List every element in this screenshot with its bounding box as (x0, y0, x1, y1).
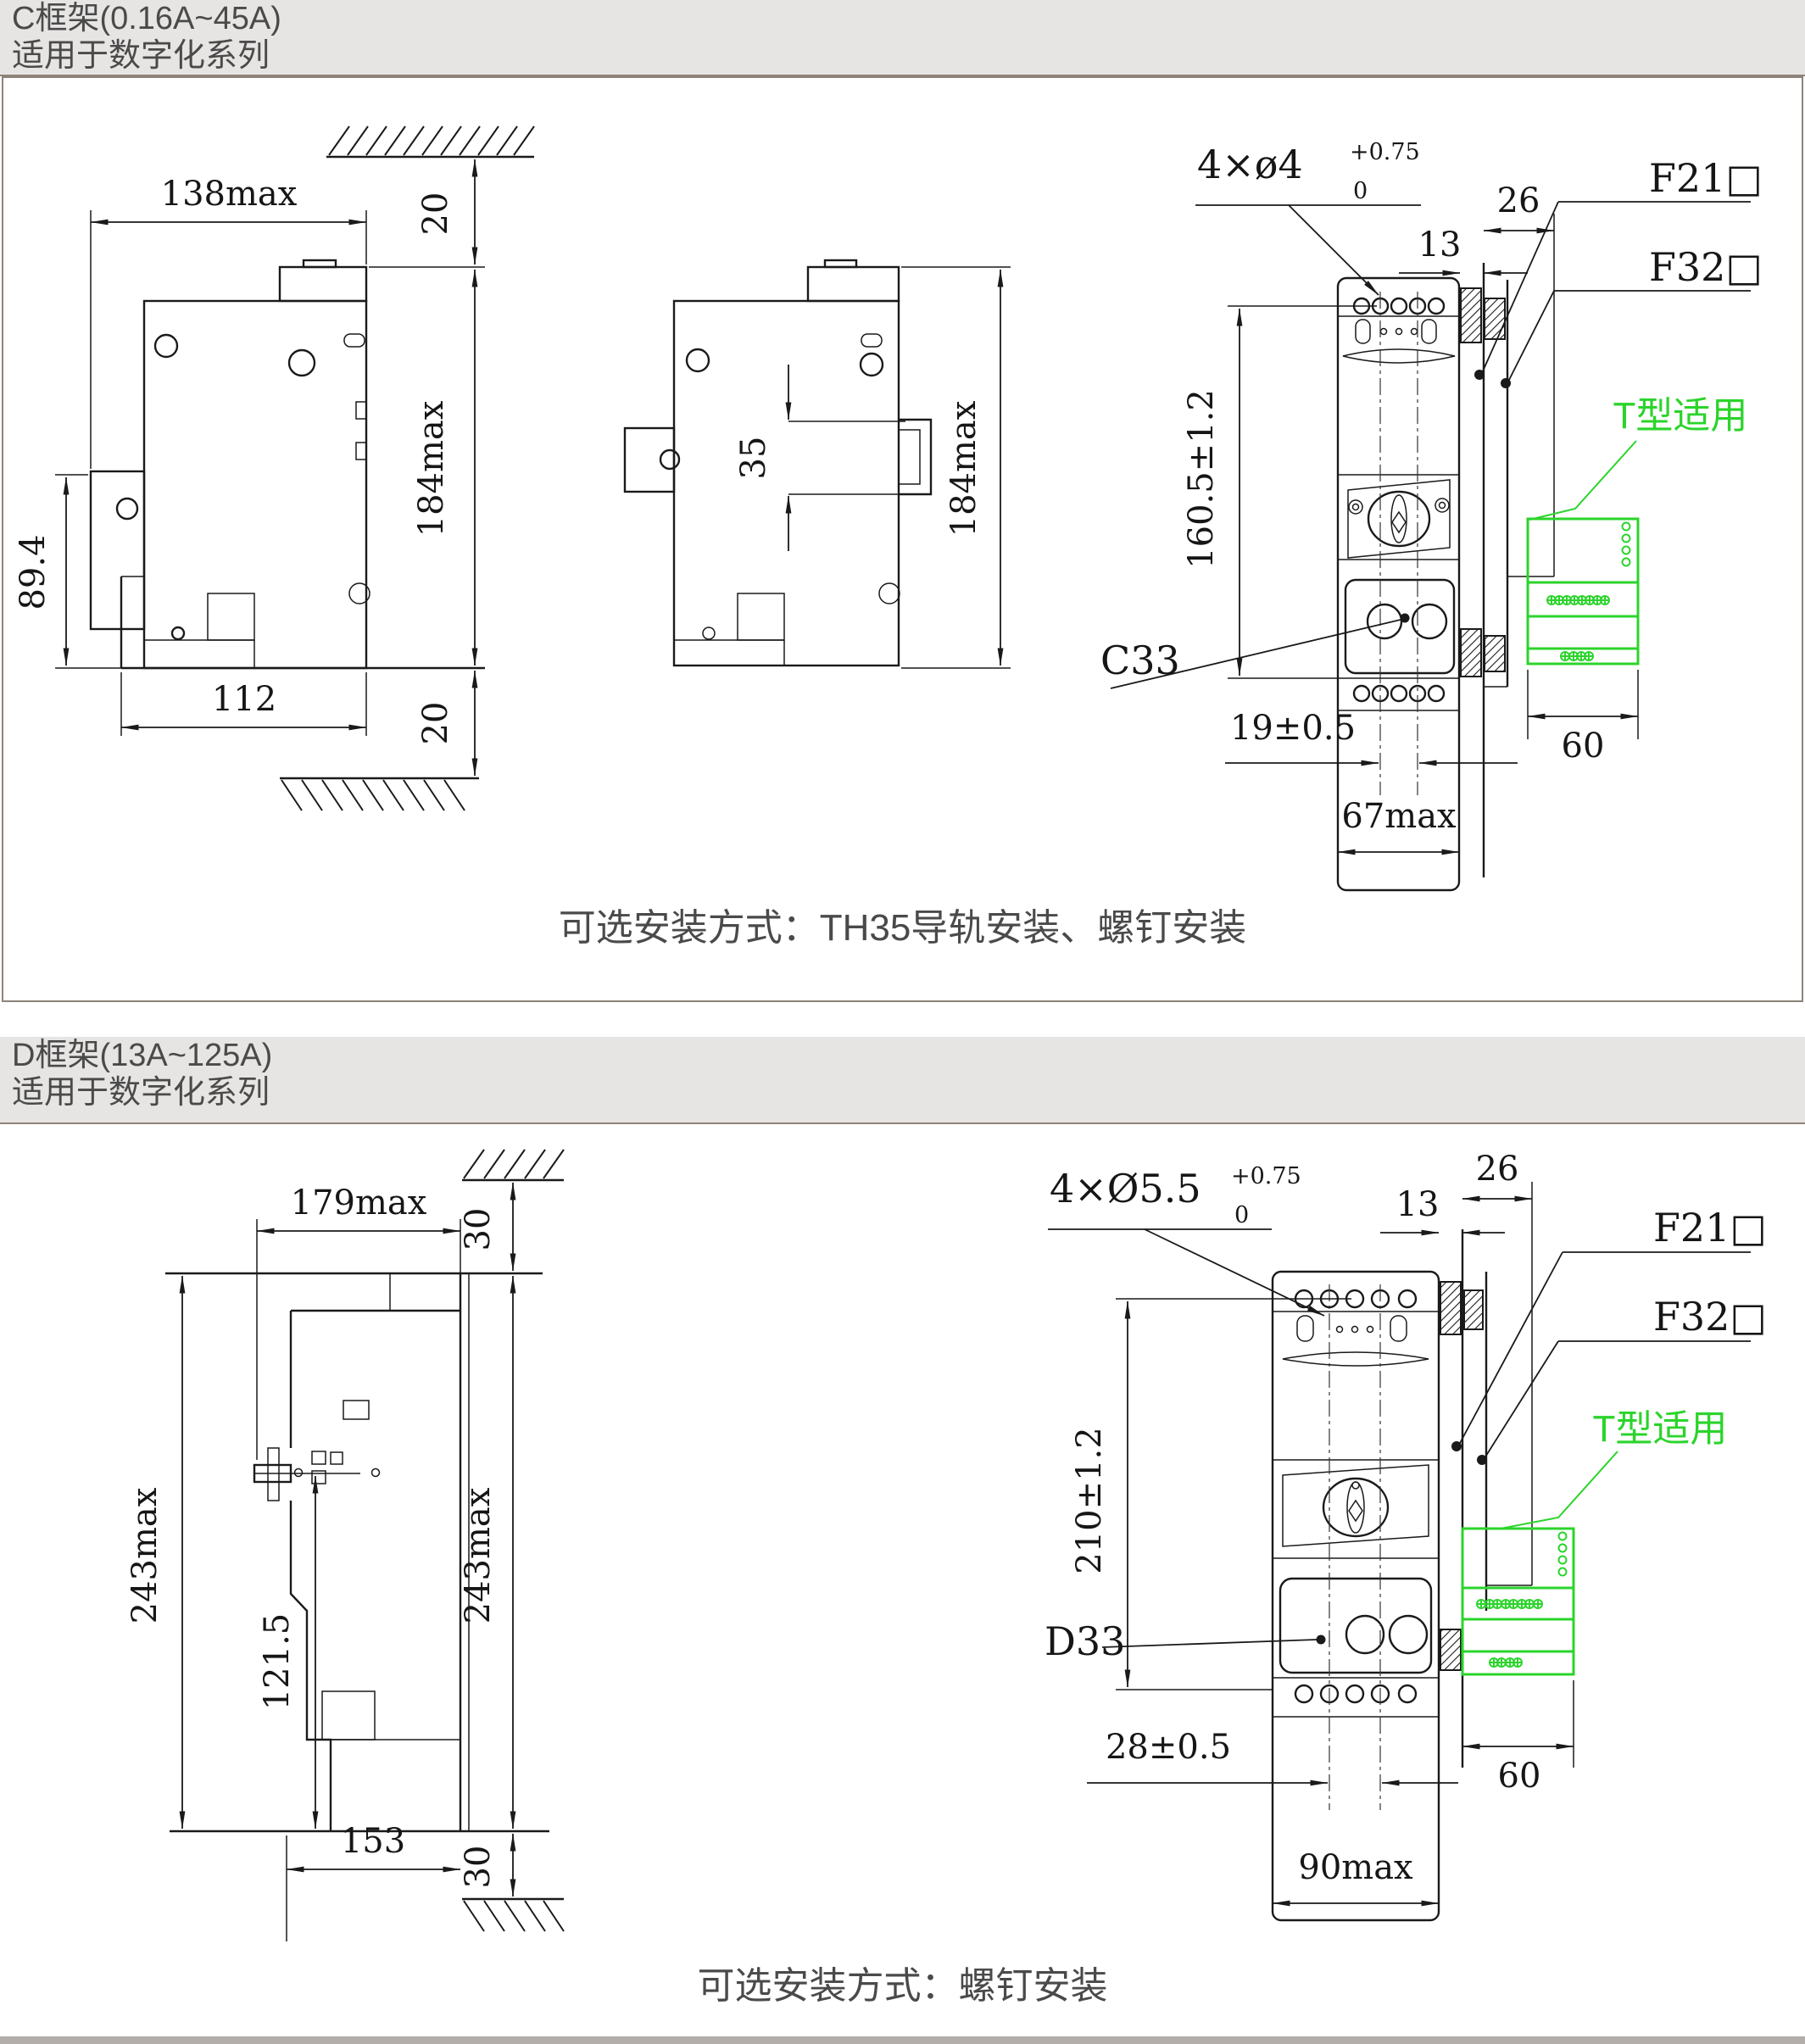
t-type-note-label: T型适用 (1613, 395, 1748, 437)
dim-label-13-d: 13 (1396, 1185, 1440, 1224)
dim-label-26: 26 (1497, 181, 1540, 220)
wall-hatch-bottom-icon (280, 778, 479, 810)
dim-c-bottom-gap: 20 (416, 671, 475, 776)
f21-label: F21□ (1649, 155, 1763, 201)
d-front-view: 4×Ø5.5 +0.75 0 13 26 210±1.2 (1045, 1150, 1767, 1920)
dim-label-160-5: 160.5±1.2 (1182, 389, 1221, 569)
dim-label-138max: 138max (161, 175, 298, 214)
page: C框架(0.16A~45A) 适用于数字化系列 D框架(13A~125A) 适用… (0, 0, 1805, 2044)
wall-hatch-top-icon (326, 126, 534, 157)
dim-label-210: 210±1.2 (1070, 1427, 1109, 1573)
dim-label-243max-left: 243max (125, 1487, 164, 1624)
dim-d-height-right: 243max (459, 1276, 513, 1829)
c-side-view: 138max 20 184max 20 89.4 (14, 126, 534, 810)
c-holes-tol-lower: 0 (1353, 178, 1368, 204)
dim-label-67max: 67max (1341, 797, 1457, 836)
d-holes-tol-lower: 0 (1234, 1202, 1249, 1228)
dim-label-top-20: 20 (416, 192, 455, 236)
dim-d-top-gap: 30 (459, 1183, 513, 1271)
dim-c-depth-outer: 26 (1484, 181, 1554, 231)
dim-label-89-4: 89.4 (14, 534, 53, 610)
dim-label-30-bottom: 30 (459, 1846, 498, 1889)
dim-c-depth-inner: 13 (1399, 226, 1528, 273)
dim-c-width-front: 67max (1338, 797, 1459, 852)
dim-c-accessory-width: 60 (1528, 670, 1638, 766)
dim-c-width: 138max (91, 175, 366, 469)
d-front-body (1273, 1272, 1439, 1920)
dim-d-depth-inner: 13 (1380, 1185, 1505, 1233)
dim-label-184max-rail: 184max (944, 400, 983, 537)
dim-d-bottom-gap: 30 (459, 1834, 513, 1896)
f32-callout: F32□ (1508, 244, 1763, 382)
dim-c-rail-pitch: 35 (734, 365, 905, 551)
dim-label-19: 19±0.5 (1230, 709, 1356, 748)
dim-label-28: 28±0.5 (1106, 1728, 1231, 1767)
d-holes-tol-upper: +0.75 (1231, 1163, 1301, 1189)
dim-label-243max-right: 243max (459, 1487, 498, 1624)
c-hole-callout: 4×ø4 +0.75 0 (1195, 139, 1421, 295)
f32-label: F32□ (1649, 244, 1763, 290)
technical-drawing-canvas: 138max 20 184max 20 89.4 (0, 0, 1805, 2044)
c-holes-tol-upper: +0.75 (1350, 139, 1420, 165)
f32-label-d: F32□ (1653, 1294, 1767, 1339)
c-rail-body (625, 260, 931, 666)
dim-label-26-d: 26 (1476, 1150, 1519, 1189)
dim-d-accessory-width: 60 (1462, 1680, 1574, 1796)
t-type-accessory-box (1528, 519, 1638, 664)
wall-hatch-bottom-d-icon (462, 1899, 564, 1931)
d-holes-label: 4×Ø5.5 (1050, 1166, 1201, 1211)
dim-c-lug-height: 89.4 (14, 475, 121, 668)
dim-d-depth-outer: 26 (1462, 1150, 1532, 1199)
d33-leader-dot (1317, 1635, 1326, 1645)
c-front-view: 4×ø4 +0.75 0 13 26 160.5±1.2 (1100, 139, 1763, 890)
dim-c-base-width: 112 (121, 672, 366, 736)
dim-d-base-width: 153 (287, 1822, 460, 1941)
dim-label-13: 13 (1418, 226, 1462, 265)
c-rail-view: 35 184max (625, 260, 1011, 668)
dim-label-bottom-20: 20 (416, 702, 455, 745)
dim-d-width: 179max (257, 1184, 460, 1460)
t-type-accessory-box-d (1462, 1529, 1574, 1674)
dim-label-30-top: 30 (459, 1208, 498, 1251)
dim-d-width-front: 90max (1273, 1848, 1439, 1903)
dim-label-121-5: 121.5 (258, 1613, 297, 1711)
dim-label-60-d: 60 (1498, 1757, 1541, 1796)
dim-label-179max: 179max (291, 1184, 427, 1223)
wall-hatch-top-d-icon (462, 1150, 564, 1180)
dim-c-terminal-pitch: 19±0.5 (1225, 709, 1518, 763)
f21-label-d: F21□ (1653, 1205, 1767, 1250)
t-type-note-callout: T型适用 (1529, 395, 1747, 520)
c-holes-label: 4×ø4 (1197, 142, 1303, 187)
t-type-note-label-d: T型适用 (1593, 1408, 1728, 1450)
din-clip-bracket (1461, 214, 1554, 877)
dim-label-90max: 90max (1298, 1848, 1413, 1887)
dim-label-112: 112 (212, 680, 276, 719)
dim-c-rail-height: 184max (901, 267, 1011, 668)
dim-label-35: 35 (734, 437, 773, 480)
c33-label: C33 (1100, 638, 1180, 683)
dim-c-height: 184max (412, 270, 475, 666)
dim-label-184max: 184max (412, 400, 451, 537)
dim-label-153: 153 (341, 1822, 405, 1861)
dim-c-top-gap: 20 (369, 159, 485, 267)
d-hole-callout: 4×Ø5.5 +0.75 0 (1048, 1163, 1324, 1316)
din-clip-bracket-d (1440, 1182, 1532, 1768)
dim-label-60-c: 60 (1562, 727, 1605, 766)
d33-label: D33 (1045, 1618, 1125, 1664)
dim-d-height-left: 243max (125, 1276, 182, 1829)
t-type-note-callout-d: T型适用 (1501, 1408, 1727, 1529)
c33-leader-dot (1401, 614, 1410, 623)
d-side-view: 179max 30 243max 30 243max (125, 1150, 564, 1941)
d33-callout: D33 (1045, 1618, 1317, 1664)
